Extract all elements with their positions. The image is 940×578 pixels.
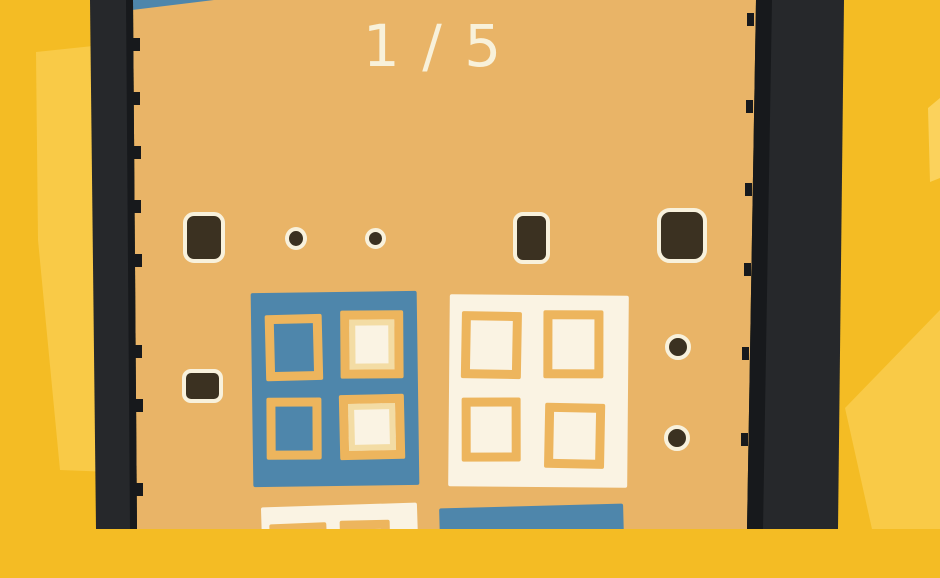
bezel-step-notch [745, 183, 752, 196]
tile-pane-cream [269, 522, 328, 574]
bezel-step-notch [134, 200, 141, 213]
board-peg-square [183, 212, 225, 263]
board-peg-dot [664, 425, 690, 451]
bezel-step-notch [136, 483, 143, 496]
tile-pane-cream [340, 520, 391, 571]
board-peg-dot [665, 334, 691, 360]
bezel-step-notch [133, 38, 140, 51]
bezel-step-notch [746, 100, 753, 113]
bezel-step-notch [747, 13, 754, 26]
bezel-step-notch [135, 254, 142, 267]
bezel-step-notch [133, 92, 140, 105]
bezel-step-notch [136, 399, 143, 412]
tile-pane-cream [462, 398, 521, 462]
tile-pane-blue [266, 397, 321, 459]
bezel-step-notch [744, 263, 751, 276]
board-peg-dot [365, 228, 386, 249]
scene: { "hud": { "progress": "1 / 5" }, "color… [0, 0, 940, 529]
tile-pane-cream [461, 311, 522, 379]
bezel-step-notch [134, 146, 141, 159]
tile-pane-cream [339, 394, 405, 460]
pattern-tile-cream[interactable] [448, 294, 629, 488]
board-peg-square [657, 208, 707, 263]
pattern-tile-blue[interactable] [439, 504, 625, 578]
board-peg-dot [285, 227, 307, 250]
board-peg-wide-rect [182, 369, 223, 403]
tile-pane-cream [543, 310, 603, 378]
bezel-step-notch [742, 347, 749, 360]
tile-pane-blue [265, 314, 324, 381]
tile-pane-cream [544, 403, 605, 469]
bezel-step-notch [741, 433, 748, 446]
pattern-tile-blue[interactable] [251, 291, 420, 487]
tile-pane-cream [340, 310, 403, 378]
pattern-tile-cream[interactable] [261, 503, 419, 578]
board-peg-tall-rect [513, 212, 550, 264]
bezel-step-notch [135, 345, 142, 358]
